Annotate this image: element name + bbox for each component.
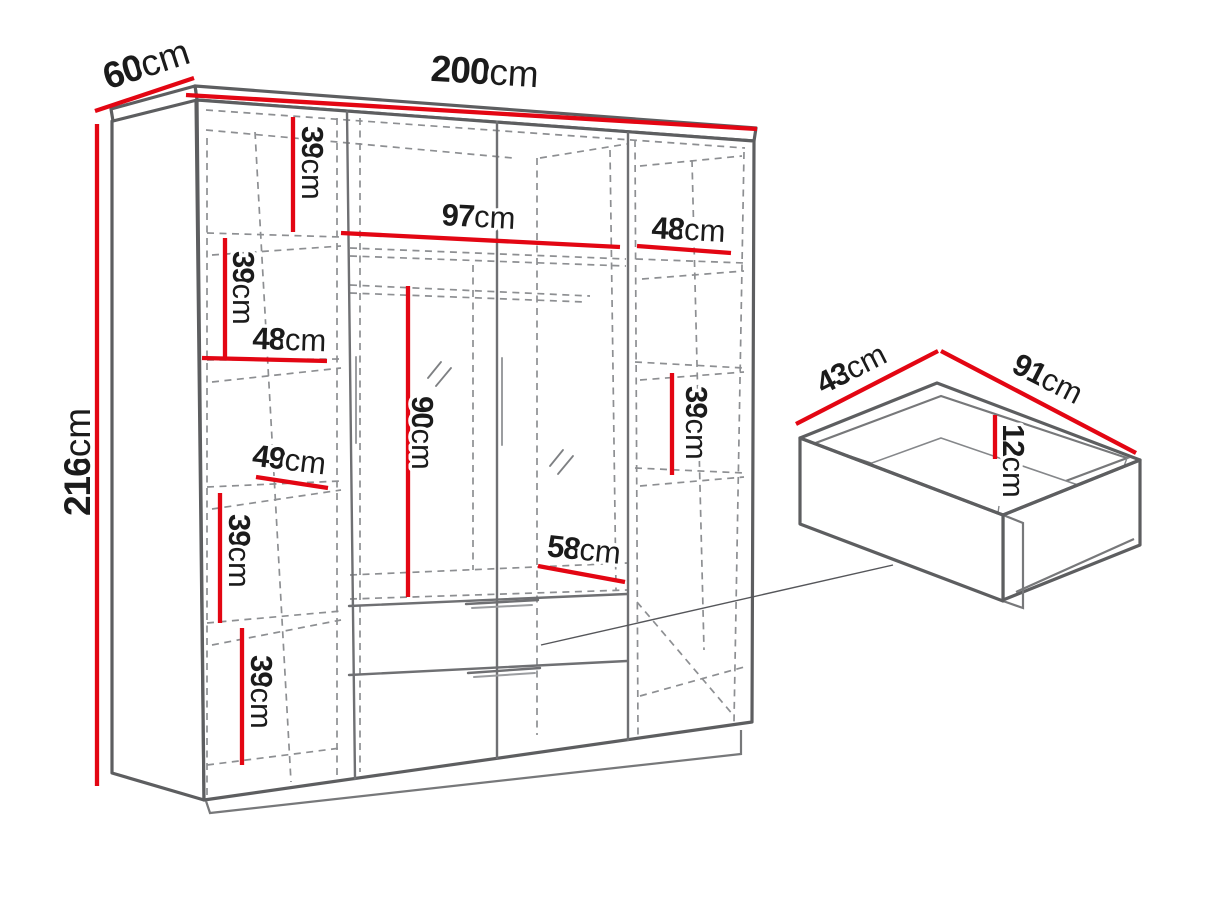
dim-label-hanging-height: 90cm: [405, 396, 440, 470]
dim-line-left-width-upper: [202, 358, 327, 361]
dim-label-left-width-upper: 48cm: [252, 321, 327, 359]
dim-label-overall-depth: 60cm: [98, 31, 195, 97]
wardrobe-dimensions-diagram: 60cm 200cm 216cm 39cm 39cm 48cm 49cm 39c…: [0, 0, 1214, 910]
diagram-canvas: 60cm 200cm 216cm 39cm 39cm 48cm 49cm 39c…: [0, 0, 1214, 910]
dim-label-middle-width: 97cm: [441, 197, 517, 236]
dim-label-drawer-width: 91cm: [1007, 346, 1089, 411]
dim-label-overall-height: 216cm: [57, 408, 98, 516]
dim-label-left-gap-4: 39cm: [244, 655, 279, 729]
dim-label-left-gap-1: 39cm: [295, 126, 330, 200]
dim-label-right-gap: 39cm: [679, 386, 714, 460]
dim-label-drawer-depth: 43cm: [810, 336, 892, 401]
dim-label-left-gap-3: 39cm: [222, 514, 257, 588]
dim-label-left-gap-2: 39cm: [226, 251, 261, 325]
dim-label-right-width: 48cm: [651, 210, 727, 249]
dim-label-drawer-height: 12cm: [996, 424, 1031, 498]
wardrobe-side-panel: [112, 99, 204, 800]
dim-label-overall-width: 200cm: [430, 48, 540, 96]
